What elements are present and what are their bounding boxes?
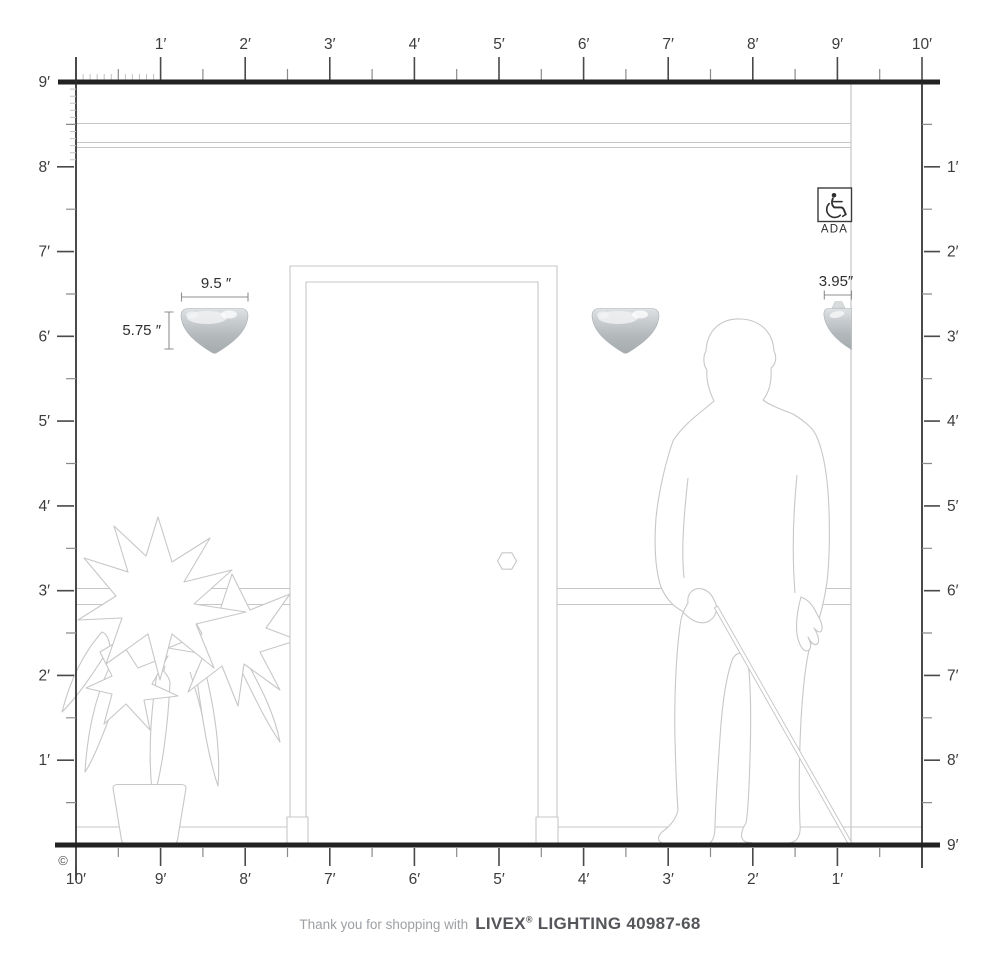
- ruler-label: 2′: [38, 667, 50, 684]
- ruler-label: 8′: [38, 159, 50, 176]
- footer-prefix-text: Thank you for shopping with: [299, 917, 468, 932]
- ruler-label: 9′: [155, 871, 167, 888]
- ruler-label: 8′: [747, 36, 759, 53]
- ruler-label: 2′: [947, 244, 959, 261]
- ada-badge-label: ADA: [821, 224, 848, 236]
- person-silhouette: [655, 319, 853, 846]
- ruler-label: 1′: [38, 752, 50, 769]
- ruler-label: 6′: [409, 871, 421, 888]
- ruler-label: 2′: [239, 36, 251, 53]
- ruler-label: 10′: [66, 871, 86, 888]
- ruler-label: 5′: [38, 413, 50, 430]
- door-plinth-block: [536, 817, 558, 844]
- sconce-middle: [592, 309, 659, 354]
- ruler-label: 5′: [493, 36, 505, 53]
- ruler-label: 3′: [947, 328, 959, 345]
- dimension-line-projection: [824, 291, 851, 300]
- left-ruler: 9′ 8′ 7′ 6′ 5′ 4′ 3′ 2′ 1′: [38, 57, 76, 880]
- ruler-label: 7′: [662, 36, 674, 53]
- ruler-label: 1′: [947, 159, 959, 176]
- ruler-label: 2′: [747, 871, 759, 888]
- dimension-label-projection: 3.95″: [819, 273, 854, 290]
- ada-badge-box: [818, 188, 852, 222]
- sconce-side-profile: [824, 302, 852, 350]
- plant-leaf: [196, 670, 219, 786]
- elevation-drawing: ADA 9.5 ″ 5.75 ″ 3.95″ 1′ 2′ 3′ 4′ 5′ 6′…: [0, 0, 1000, 959]
- bottom-ruler: © 10′ 9′ 8′ 7′ 6′ 5′ 4′ 3′ 2′ 1′: [55, 845, 940, 888]
- ruler-label: 4′: [38, 498, 50, 515]
- registered-mark: ®: [526, 914, 533, 924]
- ruler-label: 1′: [155, 36, 167, 53]
- dimension-label-height: 5.75 ″: [122, 322, 161, 339]
- person-outline: [655, 319, 829, 845]
- plant-pot: [113, 785, 186, 845]
- ruler-label: 8′: [239, 871, 251, 888]
- ruler-label: 9′: [947, 837, 959, 854]
- potted-plant: [62, 517, 298, 844]
- ruler-label: 6′: [578, 36, 590, 53]
- product-model-text: LIGHTING 40987-68: [538, 914, 701, 933]
- ruler-label: 9′: [832, 36, 844, 53]
- dimension-line-width: [182, 293, 249, 302]
- ruler-label: 4′: [409, 36, 421, 53]
- footer-tagline: Thank you for shopping withLIVEX®LIGHTIN…: [0, 914, 1000, 934]
- sconce-left: [181, 309, 248, 354]
- ruler-label: 9′: [38, 74, 50, 91]
- elevation-diagram-page: ADA 9.5 ″ 5.75 ″ 3.95″ 1′ 2′ 3′ 4′ 5′ 6′…: [0, 0, 1000, 959]
- ada-badge: ADA: [818, 188, 852, 236]
- door-opening: [290, 266, 557, 844]
- ruler-label: 6′: [38, 328, 50, 345]
- ruler-label: 6′: [947, 583, 959, 600]
- ruler-label: 8′: [947, 752, 959, 769]
- sconce-mount-tab: [832, 302, 845, 309]
- ruler-label: 3′: [662, 871, 674, 888]
- ruler-label: 3′: [38, 583, 50, 600]
- door-plinth-block: [287, 817, 308, 844]
- ruler-label: 10′: [912, 36, 932, 53]
- ruler-label: 3′: [324, 36, 336, 53]
- right-ruler: 1′ 2′ 3′ 4′ 5′ 6′ 7′ 8′ 9′: [922, 82, 959, 868]
- top-ruler: 1′ 2′ 3′ 4′ 5′ 6′ 7′ 8′ 9′ 10′: [58, 36, 940, 82]
- ruler-label: 7′: [38, 244, 50, 261]
- door: [287, 266, 558, 845]
- brand-name: LIVEX®: [475, 914, 533, 933]
- ruler-label: 4′: [947, 413, 959, 430]
- door-knob: [498, 553, 517, 569]
- copyright-mark: ©: [58, 853, 68, 868]
- ruler-label: 4′: [578, 871, 590, 888]
- ruler-label: 5′: [947, 498, 959, 515]
- ruler-label: 5′: [493, 871, 505, 888]
- brand-text: LIVEX: [475, 914, 526, 933]
- ruler-label: 1′: [832, 871, 844, 888]
- half-foot-ticks: [922, 124, 932, 802]
- dimension-label-width: 9.5 ″: [201, 275, 232, 292]
- dimension-line-height: [165, 312, 174, 349]
- ruler-label: 7′: [947, 667, 959, 684]
- ruler-label: 7′: [324, 871, 336, 888]
